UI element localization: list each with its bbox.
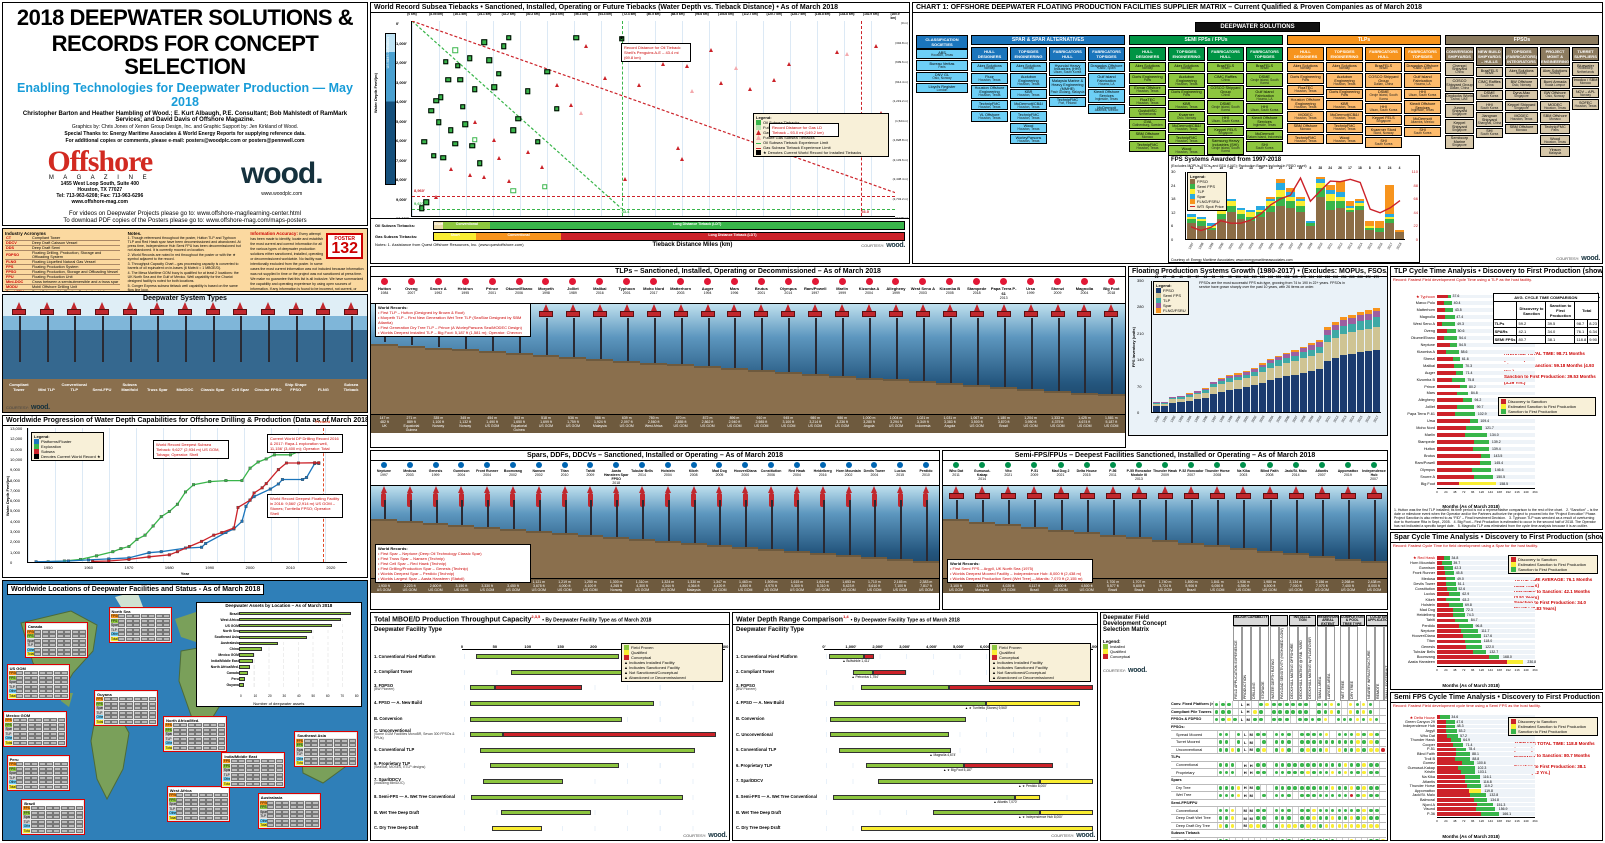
depth-loc: US GOM bbox=[861, 588, 887, 592]
wd-title: Water Depth Range Comparison bbox=[736, 616, 843, 623]
legend-swatch-icon bbox=[756, 125, 761, 130]
region-cell bbox=[20, 727, 27, 731]
acronym-row: Semi-FPUSemi-Submersible Floating Produc… bbox=[5, 290, 120, 292]
column-header: CONVERSION SHIPYARDS bbox=[1445, 47, 1474, 61]
matrix-dot bbox=[1312, 748, 1316, 752]
matrix-dot bbox=[1287, 748, 1291, 752]
tlp-platform bbox=[936, 304, 963, 414]
courtesy-label: COURTESY: bbox=[861, 243, 884, 248]
bar-total: 175 bbox=[1300, 275, 1307, 279]
cycle-total: 34.8 bbox=[1450, 556, 1458, 560]
company-box: Exmar OffshoreHouston, Texas bbox=[1129, 85, 1166, 95]
bar-segment-TLP bbox=[1324, 335, 1331, 342]
bar-segment-Semi FPS bbox=[1275, 366, 1282, 378]
cycle-segment bbox=[1437, 385, 1460, 389]
matrix-cell bbox=[1309, 709, 1315, 716]
y-tick: 12,000 bbox=[10, 436, 22, 441]
cycle-segment bbox=[1445, 571, 1454, 575]
region-cell bbox=[261, 773, 268, 777]
bar-total: 24 bbox=[1326, 166, 1335, 170]
fps-awarded-title: FPS Systems Awarded from 1997-2018 bbox=[1169, 156, 1419, 164]
company-location: Singapore bbox=[1506, 107, 1537, 110]
cycle-total: 62.9 bbox=[1461, 592, 1469, 596]
region-name: Brazil bbox=[23, 801, 83, 806]
region-cell bbox=[57, 643, 64, 647]
semi-platform bbox=[1178, 486, 1204, 578]
range-track bbox=[464, 763, 725, 768]
region-cell bbox=[218, 737, 225, 741]
x-tick: 2002 bbox=[1237, 242, 1244, 250]
semi-cycle-xlabel: Months (As of March 2018) bbox=[1391, 834, 1551, 839]
tlp-platform bbox=[802, 304, 829, 414]
region-cells: FPSOFPSSparTLPOtherTotals bbox=[5, 718, 65, 745]
platform-name: Aasta Hansteen Spar FPSO bbox=[603, 469, 629, 481]
region-cell bbox=[231, 768, 238, 772]
tlp-platform bbox=[883, 304, 910, 414]
seabed-step bbox=[732, 547, 758, 578]
matrix-dot bbox=[1375, 748, 1379, 752]
matrix-dot bbox=[1293, 771, 1297, 775]
bar-column: 232007 bbox=[1286, 172, 1295, 239]
region-cell bbox=[163, 619, 170, 623]
matrix-dot bbox=[1344, 740, 1348, 744]
depth-loc: US GOM bbox=[995, 588, 1021, 592]
cycle-total: 54.4 bbox=[1458, 336, 1466, 340]
region-cell bbox=[20, 732, 27, 736]
region-cell bbox=[39, 685, 46, 689]
tlp-icon bbox=[539, 304, 553, 319]
region-cell bbox=[72, 639, 79, 643]
courtesy-label: COURTESY: bbox=[1051, 833, 1074, 838]
cycle-total: 168.0 bbox=[1502, 655, 1512, 659]
hbar-label: North Sea bbox=[199, 629, 239, 633]
region-cell bbox=[290, 814, 297, 818]
bar-segment-FPSO bbox=[1153, 406, 1160, 412]
semi-icon bbox=[1263, 486, 1277, 501]
project-name: Medusa bbox=[1393, 577, 1437, 581]
cycle-segment bbox=[1437, 475, 1474, 479]
cycle-segment bbox=[1444, 301, 1452, 305]
matrix-dot bbox=[1325, 771, 1329, 775]
matrix-row: UnconventionalLM bbox=[1171, 747, 1386, 755]
semi-icon bbox=[1106, 486, 1120, 501]
platform-icon bbox=[178, 302, 192, 317]
facility-type-label: B. Conversion bbox=[736, 717, 826, 721]
cycle-segment bbox=[1453, 357, 1460, 361]
spar-depth-label: 1,324 m4,344 ftUS GOM bbox=[655, 579, 681, 593]
cycle-track bbox=[1437, 624, 1535, 628]
region-cell bbox=[31, 785, 38, 789]
operator-logo-icon bbox=[1188, 462, 1194, 468]
range-row: C. Dry Tree Deep Draft bbox=[374, 820, 725, 836]
title-block: 2018 DEEPWATER SOLUTIONS & RECORDS FOR C… bbox=[2, 2, 368, 226]
region-cell bbox=[42, 643, 49, 647]
bar-total: 13 bbox=[1246, 166, 1255, 170]
company-name: Malaysia Marine & Heavy Engineering (MMH… bbox=[1050, 79, 1085, 91]
matrix-row: Spars bbox=[1171, 777, 1386, 785]
project-name: Neptune bbox=[1393, 629, 1437, 633]
facility-type-label: 4. FPSO — A. New Build bbox=[374, 701, 464, 705]
company-location: Norway bbox=[1573, 94, 1598, 97]
matrix-dot bbox=[1275, 816, 1279, 820]
company-location: Malaysia bbox=[1541, 152, 1569, 155]
cycle-track bbox=[1437, 619, 1535, 623]
offshore-url: www.offshore-mag.com bbox=[47, 199, 152, 205]
matrix-row-label: Deep Draft Dry Tree bbox=[1171, 824, 1217, 828]
x-tick: 1992 bbox=[1169, 415, 1176, 423]
seabed-step bbox=[1044, 391, 1071, 414]
region-cell bbox=[210, 741, 217, 745]
matrix-row-label: Deep Draft Wet Tree bbox=[1171, 816, 1217, 820]
matrix-dot bbox=[1219, 763, 1223, 767]
y-tick: 11,000 bbox=[10, 447, 22, 452]
y-tick: 10,000 bbox=[10, 457, 22, 462]
matrix-dot bbox=[1344, 786, 1348, 790]
company-box: Doris EngineeringParis bbox=[1129, 73, 1166, 83]
project-name: Neptune bbox=[1393, 343, 1437, 347]
region-cell bbox=[191, 793, 198, 797]
world-record-item: • Worlds Deepest Installed TLP – Big Foo… bbox=[378, 330, 528, 335]
region-cell bbox=[46, 780, 53, 784]
region-cell bbox=[203, 737, 210, 741]
cycle-segment bbox=[1437, 392, 1457, 396]
tlp-platform bbox=[721, 304, 748, 414]
matrix-cell bbox=[1279, 785, 1285, 792]
spar-depth-label: 2,165 m7,100 ftUS GOM bbox=[887, 579, 913, 593]
matrix-cell bbox=[1292, 823, 1298, 830]
operator-logo-icon bbox=[1000, 278, 1007, 285]
region-cell bbox=[180, 737, 187, 741]
region-cell bbox=[349, 761, 356, 765]
platform-year: 2009 bbox=[578, 473, 604, 477]
cycle-segment bbox=[1454, 364, 1463, 368]
semi-mooring bbox=[1061, 500, 1063, 534]
avg-row-label: SEMI FPSs bbox=[1493, 336, 1517, 344]
region-cell bbox=[253, 773, 260, 777]
region-cell bbox=[31, 815, 38, 819]
facility-type-label: 5. Conventional TLP bbox=[736, 748, 826, 752]
cycle-segment bbox=[1446, 577, 1455, 581]
x-tick: 264 bbox=[1532, 668, 1537, 672]
matrix-cell bbox=[1264, 716, 1270, 723]
platform-icon bbox=[316, 302, 330, 317]
platform-column bbox=[323, 316, 325, 362]
bar-segment-FPSO bbox=[1296, 212, 1305, 239]
matrix-cell bbox=[1379, 709, 1385, 716]
region-cell bbox=[118, 632, 125, 636]
operator-logo-icon bbox=[923, 462, 929, 468]
wood-mark: wood. bbox=[31, 404, 50, 411]
oil-tieback-point bbox=[460, 104, 466, 110]
x-tick: 96 bbox=[1471, 819, 1474, 823]
matrix-row: FPSOs & FDPSOLM bbox=[1171, 716, 1386, 724]
project-name: Big Foot bbox=[1393, 482, 1437, 486]
matrix-cell bbox=[1290, 716, 1296, 723]
x-tick: 48 bbox=[1453, 668, 1456, 672]
matrix-cell bbox=[1328, 709, 1334, 716]
region-cell bbox=[221, 793, 228, 797]
region-cell bbox=[184, 793, 191, 797]
matrix-row-label: Spars bbox=[1171, 778, 1233, 782]
spar-header-cell: Mad Dog 2005 bbox=[707, 461, 733, 485]
range-track bbox=[826, 826, 1093, 831]
company-location: Paris bbox=[1169, 94, 1204, 97]
cycle-track bbox=[1437, 357, 1535, 361]
matrix-cell bbox=[1279, 762, 1285, 769]
region-cell bbox=[341, 752, 348, 756]
bar-column: 1432004 bbox=[1267, 281, 1274, 412]
project-name: Titan bbox=[1393, 639, 1437, 643]
tlp-depth-label: 271 m889 ftEquatorial Guinea bbox=[398, 415, 425, 433]
cycle-total: 54.5 bbox=[1458, 343, 1466, 347]
company-box: McDermottAltamira, Mexico bbox=[1088, 104, 1125, 114]
company-box: BluewaterHoofddorp, Netherlands bbox=[1572, 62, 1599, 76]
region-cell bbox=[42, 630, 49, 634]
company-location: China bbox=[1446, 71, 1473, 74]
matrix-dot bbox=[1338, 763, 1342, 767]
cycle-segment bbox=[1437, 629, 1461, 633]
project-name: Prince bbox=[1393, 385, 1437, 389]
matrix-cell bbox=[1310, 807, 1316, 814]
platform-year: 2008 bbox=[681, 473, 707, 477]
legend-row: FLNG/FSRU bbox=[1156, 308, 1186, 313]
cycle-total: 150.5 bbox=[1495, 475, 1505, 479]
cycle-segment bbox=[1453, 608, 1464, 612]
bar-segment-Semi FPS bbox=[1300, 358, 1307, 373]
range-row: B. Wet Tree Deep Draft bbox=[374, 805, 725, 821]
company-box: ABSHouston, Texas bbox=[916, 49, 968, 59]
matrix-dot bbox=[1272, 710, 1276, 714]
matrix-dot bbox=[1306, 824, 1310, 828]
cycle-row: Auger71.4 bbox=[1393, 369, 1535, 376]
range-bar bbox=[833, 795, 1015, 800]
selection-matrix-grid: MAJOR CAPABILITYFIELD APPLICATION EXPERI… bbox=[1171, 615, 1386, 839]
tlp-platform bbox=[533, 304, 560, 414]
tlp-header-cell: Auger 1994 bbox=[694, 277, 721, 303]
oil-tieback-point bbox=[535, 139, 541, 145]
region-cell bbox=[282, 823, 289, 827]
spar-header-cell: Horn Mountain 2002 bbox=[836, 461, 862, 485]
operator-logo-icon bbox=[650, 278, 657, 285]
region-cell bbox=[203, 728, 210, 732]
matrix-dot bbox=[1293, 786, 1297, 790]
hbar-track bbox=[239, 612, 357, 616]
bar-total: 226 bbox=[1324, 275, 1331, 279]
company-location: Monaco bbox=[1506, 129, 1537, 132]
operator-logo-icon bbox=[1108, 278, 1115, 285]
region-cell bbox=[24, 685, 31, 689]
gas-tieback-point bbox=[748, 87, 752, 91]
company-box: Houston Offshore EngineeringHouston, Tex… bbox=[1287, 96, 1324, 110]
company-location: Singapore bbox=[1366, 120, 1401, 123]
company-box: MODECHouston, Texas bbox=[1505, 112, 1538, 122]
company-location: Altamira, Mexico bbox=[1089, 109, 1124, 112]
x-tick: 1997 bbox=[1188, 242, 1195, 250]
project-name: Jolliet bbox=[1393, 405, 1437, 409]
cycle-total: 84.7 bbox=[1470, 618, 1478, 622]
region-cell bbox=[24, 785, 31, 789]
fps-awarded-inset: FPS Systems Awarded from 1997-2018 (Excl… bbox=[1168, 155, 1420, 263]
operator-logo-icon bbox=[510, 462, 516, 468]
cycle-segment bbox=[1507, 660, 1523, 664]
matrix-dot bbox=[1287, 786, 1291, 790]
region-cell bbox=[275, 805, 282, 809]
bar-segment-FPSO bbox=[1251, 385, 1258, 412]
spar-header-cell: Constitution 2006 bbox=[758, 461, 784, 485]
bar-total: 27 bbox=[1161, 275, 1168, 279]
company-box: DNV GLOslo, Norway bbox=[916, 72, 968, 82]
bar-segment-FLNG/FSRU bbox=[1385, 185, 1394, 214]
region-cell bbox=[119, 720, 126, 724]
region-cell bbox=[141, 697, 148, 701]
bar-segment-Semi FPS bbox=[1326, 201, 1335, 210]
region-cell bbox=[246, 773, 253, 777]
company-box: NOV – APLNorway bbox=[1572, 88, 1599, 98]
matrix-row: Spread MooredLM bbox=[1171, 731, 1386, 739]
matrix-col-label: PAYLOAD SENSITIVITY (HIGH/MED./LOW) bbox=[1279, 626, 1288, 701]
km-tick: (128.7 km) bbox=[791, 12, 807, 16]
tlp-depth-label: 980 m3,214 ftUS GOM bbox=[802, 415, 829, 433]
facility-type-sub: (BW Pioneer) bbox=[736, 688, 824, 691]
matrix-dot bbox=[1219, 786, 1223, 790]
operator-logo-icon bbox=[785, 278, 792, 285]
depth-loc: US GOM bbox=[371, 588, 397, 592]
company-location: Oslo, Norway bbox=[917, 77, 967, 80]
legend-swatch-icon bbox=[756, 143, 761, 144]
matrix-dot bbox=[1227, 710, 1231, 714]
cycle-segment bbox=[1437, 364, 1454, 368]
bar-total: 11 bbox=[1187, 166, 1196, 170]
operator-logo-icon bbox=[1162, 462, 1168, 468]
region-cell bbox=[54, 767, 61, 771]
matrix-cell bbox=[1292, 785, 1298, 792]
tlp-tendons bbox=[734, 318, 736, 373]
region-row-label: FPSO bbox=[260, 801, 267, 805]
spar-platform bbox=[913, 486, 939, 578]
company-box: SOFECHouston, Texas bbox=[1572, 99, 1599, 109]
bar-column: 641996 bbox=[1202, 281, 1209, 412]
acronym-meaning: Cross between a semisubmersible and a tr… bbox=[31, 280, 120, 285]
matrix-dot bbox=[1225, 763, 1229, 767]
gas-tieback-point bbox=[661, 62, 665, 66]
bar-column: 1922010 bbox=[1316, 281, 1323, 412]
region-cell bbox=[53, 829, 60, 833]
matrix-group-label: INSTALLA-TION bbox=[1289, 615, 1316, 626]
bar-segment-FPSO bbox=[1169, 403, 1176, 412]
cycle-segment bbox=[1437, 650, 1473, 654]
region-row-label: FPSO bbox=[9, 762, 16, 766]
company-location: Singapore bbox=[1446, 129, 1473, 132]
cycle-row: P-36166.1 bbox=[1393, 811, 1535, 816]
semi-cycle-legend: Discovery to SanctionEstimated Sanction … bbox=[1508, 717, 1598, 736]
region-cell bbox=[16, 676, 23, 680]
tlp-depth-label: 639 m2,097 ftUS GOM bbox=[613, 415, 640, 433]
matrix-dot bbox=[1256, 786, 1260, 790]
region-cell bbox=[191, 798, 198, 802]
semi-header-cell: Mad Dog 2 2021 bbox=[1048, 461, 1074, 485]
semi-depth-label: 1,800 m5,906 ftBrazil bbox=[1178, 579, 1204, 593]
matrix-cell bbox=[1348, 731, 1354, 738]
region-cell bbox=[134, 702, 141, 706]
region-cell bbox=[58, 741, 65, 745]
range-row: 6. Proprietary TLP▲ ★ Big Foot 5,187' bbox=[736, 758, 1093, 774]
company-box: COSCO Shipyard GroupDalian, China bbox=[1445, 77, 1474, 91]
semi-icon bbox=[1184, 486, 1198, 501]
tlp-tendons bbox=[1111, 318, 1113, 406]
matrix-group: COMPLETION & POOL TREE TYPEWET TREEDRY T… bbox=[1340, 615, 1365, 701]
company-location: Norway bbox=[1130, 67, 1165, 70]
world-record-star-icon: ★ bbox=[619, 34, 624, 41]
region-name: Australasia bbox=[260, 795, 320, 800]
bar-segment-FPSO bbox=[1210, 394, 1217, 412]
region-cell bbox=[261, 782, 268, 786]
depth-loc: Malaysia bbox=[586, 424, 613, 428]
operator-logo-icon bbox=[871, 462, 877, 468]
cycle-total: 52.6 bbox=[1457, 587, 1465, 591]
bar-segment-Semi FPS bbox=[1266, 206, 1275, 213]
matrix-cell bbox=[1292, 838, 1298, 841]
bar-segment-FPSO bbox=[1246, 221, 1255, 239]
avg-v2: 34.0 bbox=[1546, 328, 1575, 336]
matrix-dot bbox=[1306, 733, 1310, 737]
poster-subtitle: Enabling Technologies for Deepwater Prod… bbox=[3, 81, 367, 109]
tlp-platform bbox=[990, 304, 1017, 414]
region-cell bbox=[50, 718, 57, 722]
cycle-segment bbox=[1463, 634, 1481, 638]
bar-column: 272006 bbox=[1276, 172, 1285, 239]
spar-header-cell: Red Hawk 2004 bbox=[784, 461, 810, 485]
semi-icon bbox=[1001, 486, 1015, 501]
region-cell bbox=[104, 706, 111, 710]
region-cell bbox=[268, 759, 275, 763]
region-cell bbox=[149, 715, 156, 719]
project-name: Oveng bbox=[1393, 329, 1437, 333]
spar-header-cell: Hoover/Diana 2000 bbox=[732, 461, 758, 485]
acronym-meaning: Floating Production, Storage and Offload… bbox=[31, 270, 120, 275]
x-tick: 2012 bbox=[1332, 415, 1339, 423]
region-cell bbox=[111, 720, 118, 724]
bar-segment-Semi FPS bbox=[1336, 201, 1345, 208]
matrix-root-node: DEEPWATER SOLUTIONS bbox=[1195, 22, 1319, 32]
courtesy-label: COURTESY: bbox=[6, 405, 29, 410]
region-cell bbox=[76, 811, 83, 815]
tlp-icon bbox=[997, 304, 1011, 319]
spar-platform bbox=[603, 486, 629, 578]
legend-row: Sanction to First Production bbox=[1511, 729, 1595, 734]
matrix-row-label: Conventional bbox=[1171, 763, 1217, 767]
matrix-dot bbox=[1306, 786, 1310, 790]
hbar-label: Brazil bbox=[199, 612, 239, 616]
avg-v3: 98.7 bbox=[1575, 320, 1588, 328]
facility-type-sub: (SeaStar, MOSES, ETLP designs) bbox=[374, 766, 462, 769]
region-cell bbox=[46, 820, 53, 824]
cycle-row: Moho Nord121.7 bbox=[1393, 425, 1535, 432]
region-row-label: FPS bbox=[96, 702, 103, 706]
cycle-segment bbox=[1437, 329, 1447, 333]
subsea-tiebacks-panel: World Record Subsea Tiebacks • Sanctione… bbox=[370, 2, 910, 264]
matrix-dot bbox=[1306, 763, 1310, 767]
company-box: WoodHouston, Texas bbox=[1326, 134, 1363, 144]
region-cell bbox=[42, 652, 49, 656]
legend-swatch-icon bbox=[1156, 308, 1161, 313]
region-cell bbox=[134, 706, 141, 710]
semi-platform bbox=[1126, 486, 1152, 578]
depth-loc: Norway bbox=[452, 424, 479, 428]
semi-header-cell: Delta House 2015 bbox=[1074, 461, 1100, 485]
supplier-column: FABRICATORS TOPSIDES Dragados OffshoreCa… bbox=[1088, 47, 1125, 144]
region-cell bbox=[61, 811, 68, 815]
spar-header-cell: Heidelberg 2016 bbox=[810, 461, 836, 485]
